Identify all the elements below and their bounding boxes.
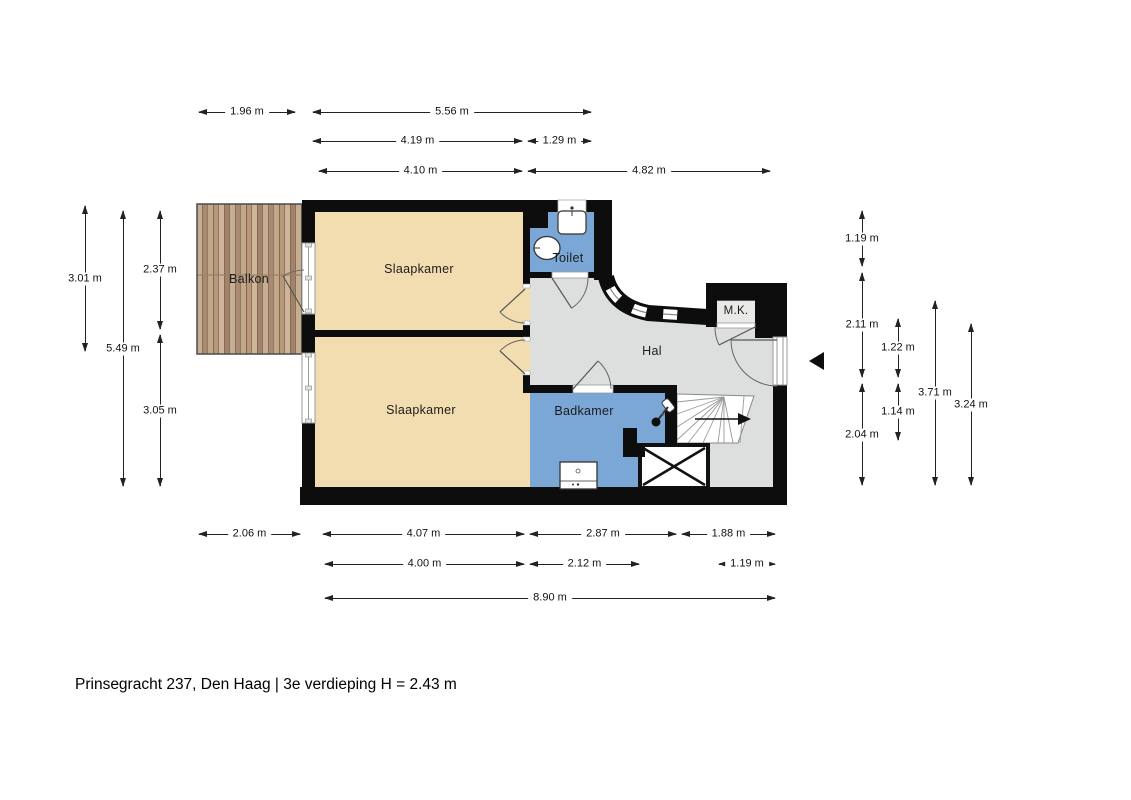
wall-bathroom-right	[665, 385, 677, 445]
wall-toilet-right	[594, 200, 612, 280]
wall-hall-bedrooms-c	[523, 374, 530, 385]
floorplan-page: Balkon Slaapkamer Slaapkamer Toilet Hal …	[0, 0, 1131, 800]
wall-toilet-bottom-a	[530, 272, 552, 278]
dim-right-2: 2.11 m	[856, 272, 868, 378]
dim-top-1: 1.96 m	[198, 106, 296, 118]
dim-left-2: 5.49 m	[117, 210, 129, 487]
curved-wall	[606, 277, 707, 317]
dim-right-7: 3.24 m	[965, 323, 977, 486]
dim-bottom-7: 1.19 m	[718, 558, 776, 570]
wall-left-bottom	[302, 423, 315, 505]
dim-bottom-4: 1.88 m	[681, 528, 776, 540]
dim-right-6: 3.71 m	[929, 300, 941, 486]
dim-bottom-2: 4.07 m	[322, 528, 525, 540]
wall-left-top	[302, 200, 315, 243]
room-label-badkamer: Badkamer	[554, 404, 613, 418]
room-label-slaapkamer-top: Slaapkamer	[384, 262, 454, 276]
wall-toilet-chunk	[530, 212, 548, 228]
dim-top-4: 1.29 m	[527, 135, 592, 147]
dim-right-4: 1.22 m	[892, 318, 904, 378]
dim-top-3: 4.19 m	[312, 135, 523, 147]
wall-left-mid	[302, 314, 315, 354]
wall-hall-bedrooms-a	[523, 212, 530, 287]
dim-left-1: 3.01 m	[79, 205, 91, 352]
dim-top-2: 5.56 m	[312, 106, 592, 118]
room-label-mk: M.K.	[724, 305, 749, 317]
dim-bottom-5: 4.00 m	[324, 558, 525, 570]
dim-top-6: 4.82 m	[527, 165, 771, 177]
room-label-toilet: Toilet	[553, 251, 584, 265]
dim-left-4: 3.05 m	[154, 334, 166, 487]
room-label-hal: Hal	[642, 344, 662, 358]
wall-right-upper	[773, 300, 787, 338]
dim-top-5: 4.10 m	[318, 165, 523, 177]
room-label-slaapkamer-bottom: Slaapkamer	[386, 403, 456, 417]
wall-mk-left	[706, 283, 717, 327]
dim-right-3: 2.04 m	[856, 383, 868, 486]
dim-right-5: 1.14 m	[892, 383, 904, 441]
dim-right-1: 1.19 m	[856, 210, 868, 267]
wall-mk-top	[706, 283, 787, 300]
wall-bottom	[300, 487, 787, 505]
bedroom-window	[302, 353, 315, 423]
wall-bedroom-divider	[315, 330, 530, 337]
dim-bottom-6: 2.12 m	[529, 558, 640, 570]
wall-bathroom-top-a	[523, 385, 573, 393]
dim-bottom-1: 2.06 m	[198, 528, 301, 540]
room-label-balkon: Balkon	[229, 272, 269, 286]
dim-bottom-8: 8.90 m	[324, 592, 776, 604]
dim-bottom-3: 2.87 m	[529, 528, 677, 540]
dim-left-3: 2.37 m	[154, 210, 166, 330]
entrance-arrow-icon	[809, 352, 824, 370]
shaft	[640, 445, 708, 488]
floorplan-caption: Prinsegracht 237, Den Haag | 3e verdiepi…	[75, 676, 457, 694]
wall-toilet-bottom-b	[588, 272, 594, 278]
